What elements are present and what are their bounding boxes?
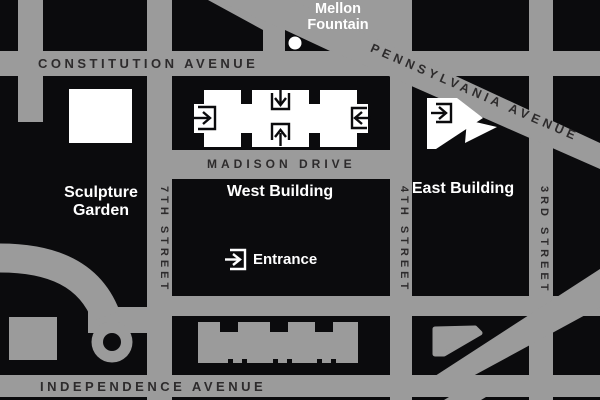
- third-street-label: 3RD STREET: [538, 186, 550, 294]
- fourth-street-label: 4TH STREET: [398, 186, 410, 293]
- mellon-fountain-label: Mellon Fountain: [293, 1, 383, 33]
- entrance-label: Entrance: [253, 251, 317, 268]
- gray-building-ring-hole: [103, 333, 121, 351]
- gray-building-crenellated: [198, 322, 358, 363]
- madison-drive-label: MADISON DRIVE: [207, 157, 356, 171]
- sculpture-garden-label: Sculpture Garden: [42, 184, 160, 220]
- nga-area-map: CONSTITUTION AVENUE PENNSYLVANIA AVENUE …: [0, 0, 600, 400]
- independence-avenue-label: INDEPENDENCE AVENUE: [40, 379, 266, 394]
- west-building-label: West Building: [217, 183, 343, 201]
- white-building-square: [69, 89, 132, 143]
- east-building-label: East Building: [401, 180, 525, 198]
- mellon-fountain-dot: [289, 37, 302, 50]
- gray-building-square: [9, 317, 57, 360]
- constitution-avenue-label: CONSTITUTION AVENUE: [38, 56, 258, 71]
- jefferson-drive-road: [147, 296, 600, 316]
